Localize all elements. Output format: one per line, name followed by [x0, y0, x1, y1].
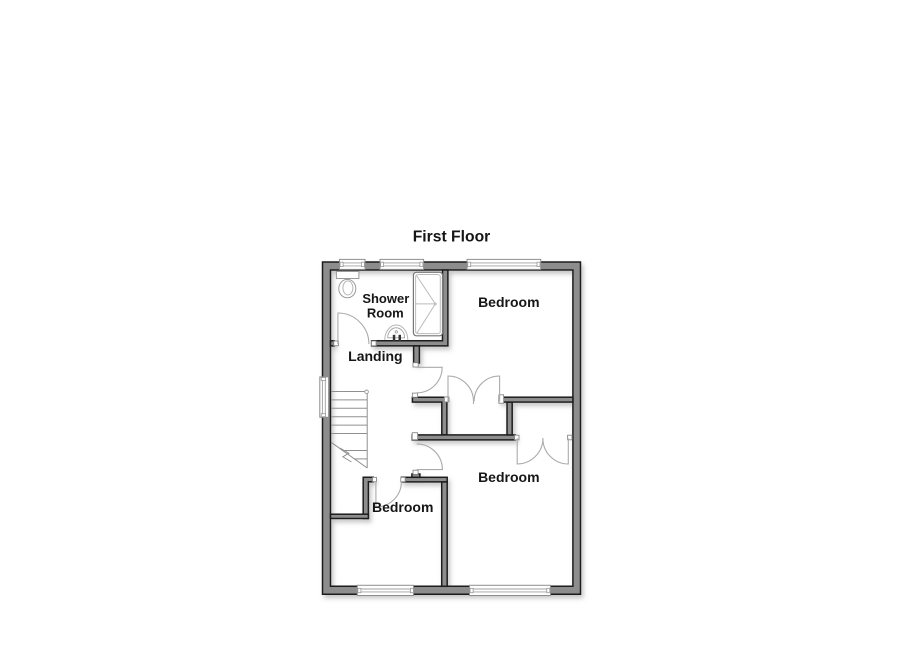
svg-text:Bedroom: Bedroom: [478, 469, 539, 485]
svg-text:Bedroom: Bedroom: [478, 294, 539, 310]
svg-text:Room: Room: [367, 306, 404, 321]
svg-text:First Floor: First Floor: [413, 229, 491, 246]
svg-text:Bedroom: Bedroom: [372, 499, 433, 515]
svg-text:Landing: Landing: [348, 348, 402, 364]
svg-text:Shower: Shower: [362, 291, 409, 306]
